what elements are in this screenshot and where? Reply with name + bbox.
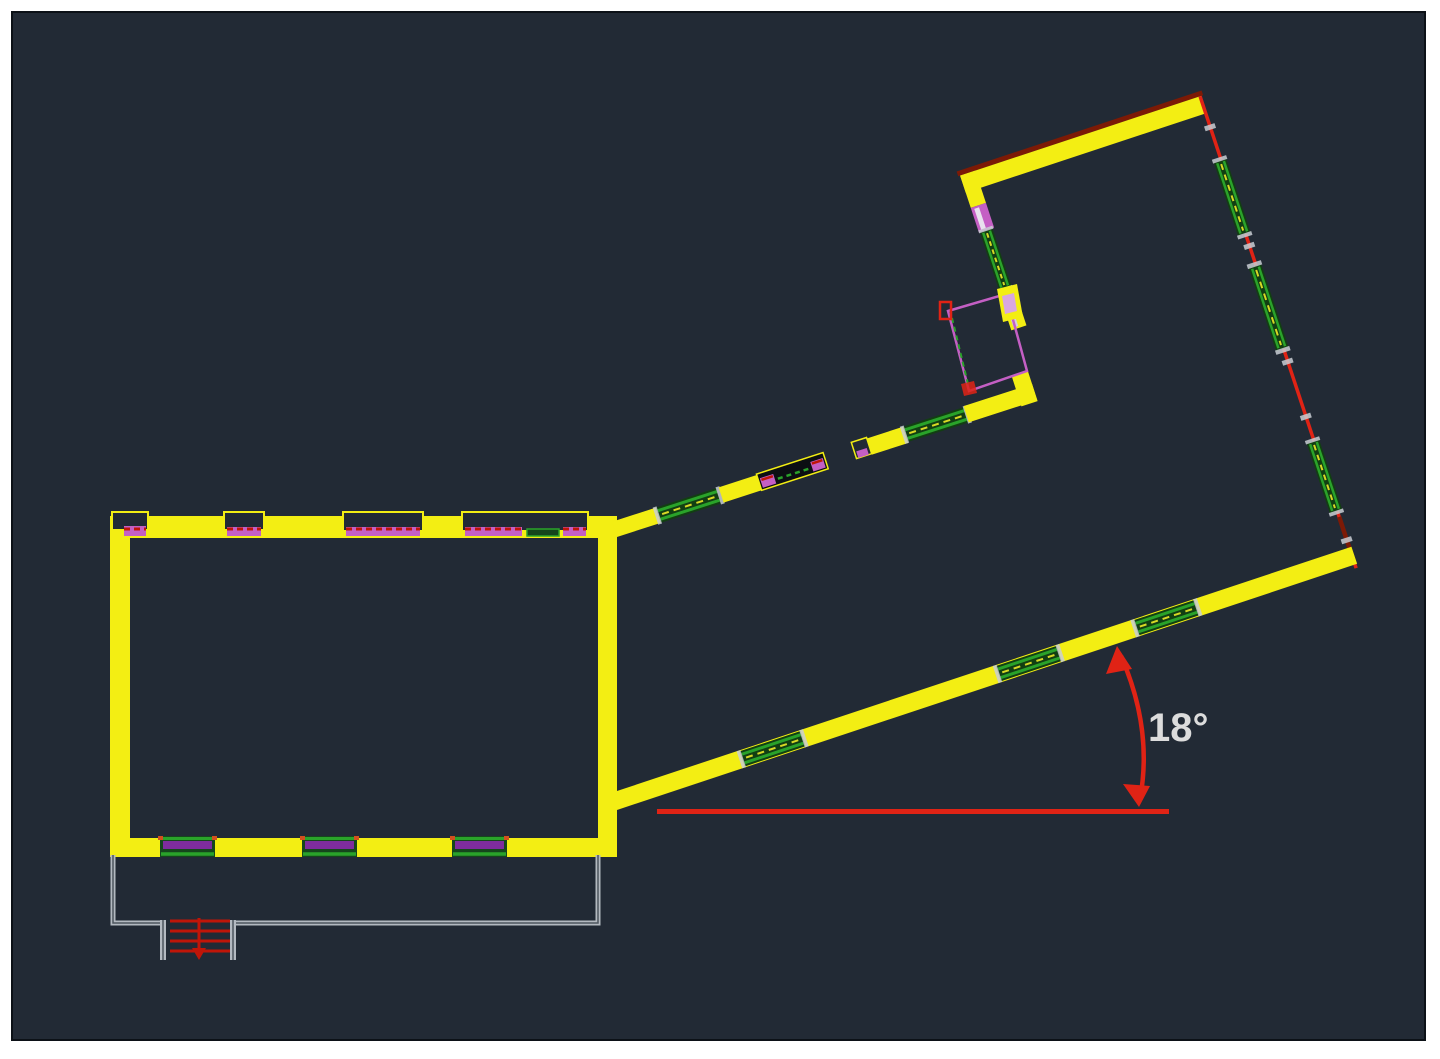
right-wall[interactable]	[598, 516, 617, 857]
screenshot-page: 18°	[0, 0, 1440, 1059]
reference-baseline	[657, 809, 1169, 814]
left-wall[interactable]	[110, 516, 130, 857]
angle-dimension-label: 18°	[1148, 706, 1209, 750]
cad-viewport[interactable]: 18°	[0, 0, 1440, 1059]
bottom-wall-windows[interactable]	[158, 836, 509, 857]
